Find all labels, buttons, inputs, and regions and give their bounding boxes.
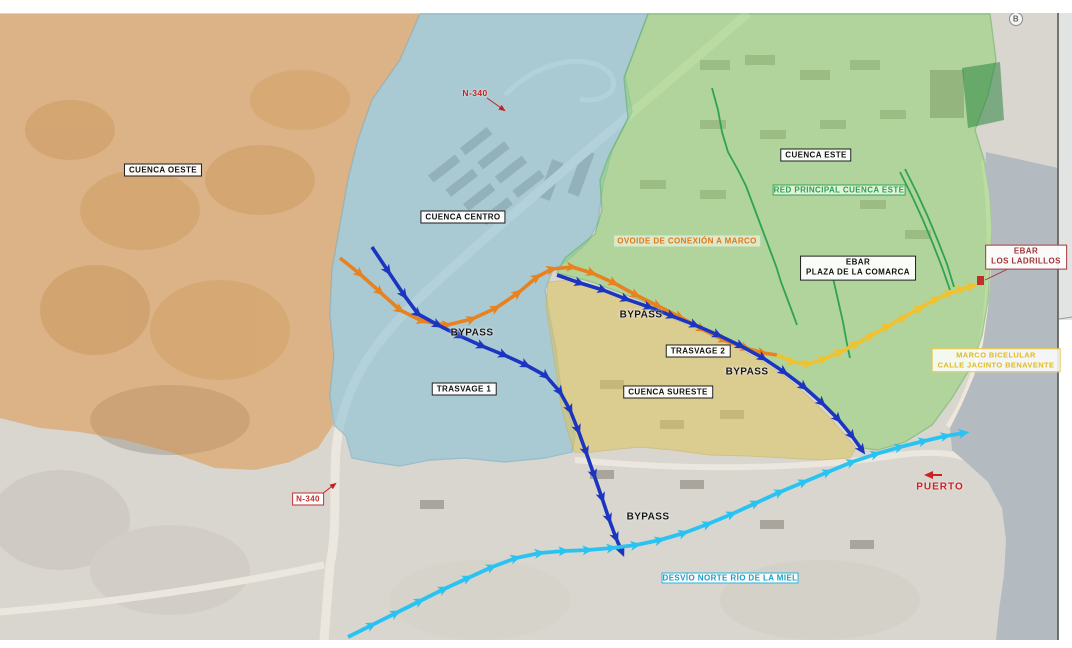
ebar-ladrillos-marker (977, 276, 984, 285)
highlighted-building (962, 62, 1004, 128)
map-canvas[interactable]: CUENCA OESTE CUENCA CENTRO CUENCA ESTE C… (0, 0, 1072, 648)
label-cuenca-centro: CUENCA CENTRO (420, 211, 505, 224)
label-bypass-4: BYPASS (627, 512, 670, 523)
label-ebar-comarca: EBAR PLAZA DE LA COMARCA (800, 256, 916, 281)
label-bypass-3: BYPASS (726, 367, 769, 378)
marco-line2: CALLE JACINTO BENAVENTE (938, 360, 1055, 370)
ebar-comarca-line2: PLAZA DE LA COMARCA (806, 268, 910, 278)
label-ebar-ladrillos: EBAR LOS LADRILLOS (985, 245, 1067, 270)
label-cuenca-sureste: CUENCA SURESTE (623, 386, 713, 399)
label-n340-bottom: N-340 (292, 493, 324, 506)
zones-layer (0, 14, 1004, 470)
top-margin (0, 0, 1072, 13)
label-red-principal: RED PRINCIPAL CUENCA ESTE (773, 185, 906, 196)
ebar-comarca-line1: EBAR (806, 258, 910, 268)
bottom-margin (0, 640, 1072, 648)
marco-line1: MARCO BICELULAR (938, 350, 1055, 360)
label-bypass-1: BYPASS (451, 328, 494, 339)
ebar-ladrillos-line2: LOS LADRILLOS (991, 257, 1061, 267)
label-bypass-2: BYPASS (620, 310, 663, 321)
label-cuenca-oeste: CUENCA OESTE (124, 164, 202, 177)
label-trasvage-1: TRASVAGE 1 (432, 383, 497, 396)
right-margin (1059, 320, 1072, 640)
label-trasvage-2: TRASVAGE 2 (666, 345, 731, 358)
label-marker-b: B (1013, 15, 1019, 24)
label-n340-top: N-340 (462, 88, 487, 98)
right-margin-sea (1059, 13, 1072, 320)
label-desvio-norte: DESVÍO NORTE RÍO DE LA MIEL (662, 573, 799, 584)
label-cuenca-este: CUENCA ESTE (780, 149, 851, 162)
label-puerto: PUERTO (916, 482, 964, 493)
map-graphics (0, 0, 1072, 648)
label-marco-bicelular: MARCO BICELULAR CALLE JACINTO BENAVENTE (932, 348, 1061, 372)
ebar-ladrillos-line1: EBAR (991, 247, 1061, 257)
label-ovoide: OVOIDE DE CONEXIÓN A MARCO (614, 236, 760, 247)
